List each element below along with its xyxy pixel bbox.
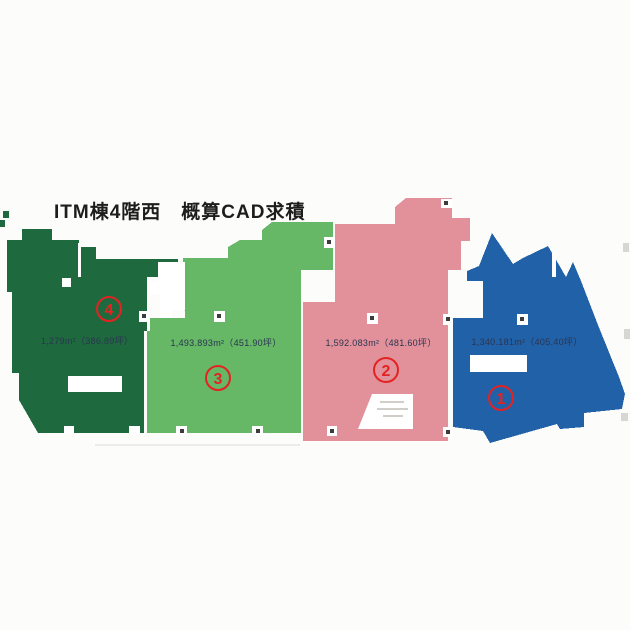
- zone-marker-1: 1: [488, 385, 514, 411]
- floor-plan-drawing: [0, 0, 630, 630]
- drawing-title: ITM棟4階西 概算CAD求積: [54, 197, 305, 224]
- region-1-opening-slot: [470, 355, 527, 372]
- area-label-1: 1,340.181m²（405.40坪）: [459, 335, 595, 347]
- area-label-2: 1,592.083m²（481.60坪）: [313, 336, 449, 348]
- zone-marker-2: 2: [373, 357, 399, 383]
- zone-marker-4: 4: [96, 296, 122, 322]
- region-4-seam-line: [78, 243, 81, 277]
- scan-debris: [0, 211, 9, 227]
- area-label-4: 1,279m²（386.89坪）: [22, 334, 152, 346]
- region-4-small-opening: [62, 278, 71, 287]
- region-1-peak-slit: [552, 252, 556, 277]
- floor-plan-canvas: ITM棟4階西 概算CAD求積 1,279m²（386.89坪） 1,493.8…: [0, 0, 630, 630]
- zone-marker-3: 3: [205, 365, 231, 391]
- region-4-opening-slot: [68, 376, 122, 392]
- area-label-3: 1,493.893m²（451.90坪）: [158, 336, 294, 348]
